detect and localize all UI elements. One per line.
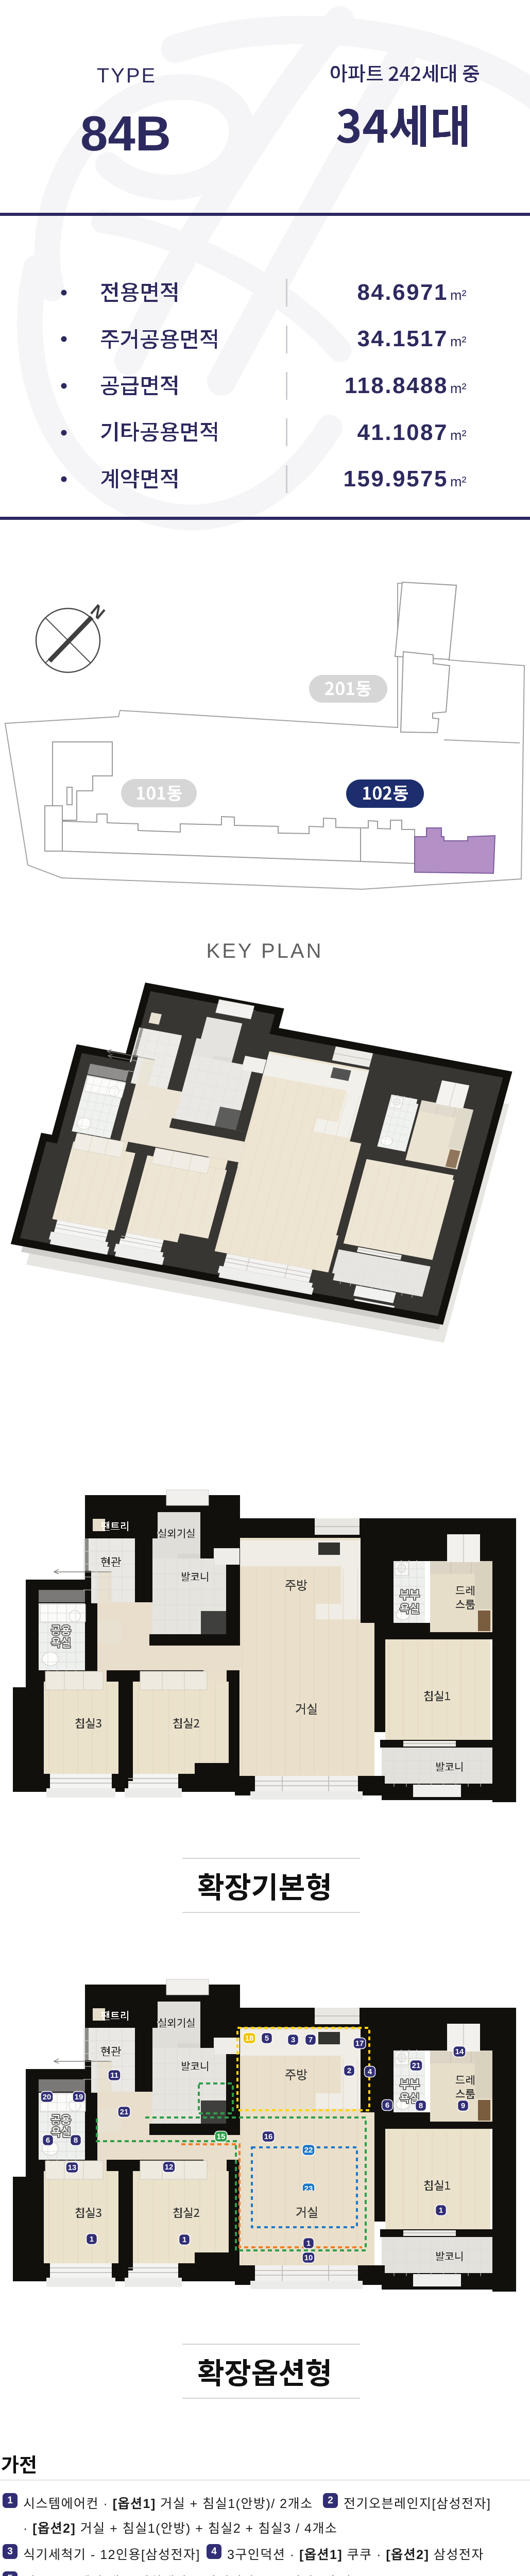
- svg-text:22: 22: [304, 2146, 313, 2155]
- svg-text:6: 6: [46, 2136, 50, 2145]
- svg-text:m²: m²: [450, 474, 466, 489]
- svg-text:41.1087: 41.1087: [357, 420, 448, 445]
- svg-text:m²: m²: [450, 381, 466, 396]
- svg-text:20: 20: [43, 2093, 52, 2102]
- svg-text:159.9575: 159.9575: [343, 466, 448, 492]
- svg-text:m²: m²: [450, 334, 466, 349]
- svg-text:14: 14: [455, 2047, 464, 2056]
- svg-text:9: 9: [461, 2102, 465, 2110]
- svg-text:13: 13: [68, 2163, 77, 2172]
- svg-text:12: 12: [165, 2163, 174, 2172]
- svg-text:34.1517: 34.1517: [357, 326, 448, 351]
- svg-text:84B: 84B: [80, 106, 171, 161]
- svg-text:11: 11: [110, 2071, 118, 2080]
- svg-text:2: 2: [347, 2066, 351, 2075]
- svg-text:TYPE: TYPE: [97, 64, 157, 87]
- svg-text:7: 7: [309, 2036, 313, 2044]
- svg-text:5: 5: [265, 2034, 269, 2043]
- svg-text:4: 4: [368, 2067, 372, 2076]
- svg-text:1: 1: [439, 2206, 443, 2215]
- svg-text:118.8488: 118.8488: [345, 373, 448, 398]
- svg-text:KEY PLAN: KEY PLAN: [207, 940, 323, 962]
- svg-text:m²: m²: [450, 287, 466, 303]
- svg-text:15: 15: [217, 2132, 226, 2141]
- svg-text:6: 6: [385, 2101, 389, 2110]
- svg-text:21: 21: [120, 2108, 129, 2116]
- svg-text:84.6971: 84.6971: [357, 280, 448, 305]
- svg-text:16: 16: [264, 2132, 273, 2141]
- svg-text:18: 18: [245, 2034, 254, 2043]
- svg-text:1: 1: [90, 2235, 94, 2244]
- svg-text:1: 1: [182, 2235, 186, 2244]
- svg-text:8: 8: [419, 2102, 423, 2110]
- svg-text:1: 1: [306, 2239, 311, 2248]
- svg-text:m²: m²: [450, 428, 466, 443]
- svg-text:17: 17: [355, 2039, 364, 2048]
- svg-text:19: 19: [75, 2093, 83, 2102]
- svg-text:10: 10: [304, 2253, 313, 2262]
- svg-text:21: 21: [412, 2061, 421, 2070]
- svg-text:8: 8: [74, 2136, 78, 2145]
- svg-text:3: 3: [291, 2036, 295, 2044]
